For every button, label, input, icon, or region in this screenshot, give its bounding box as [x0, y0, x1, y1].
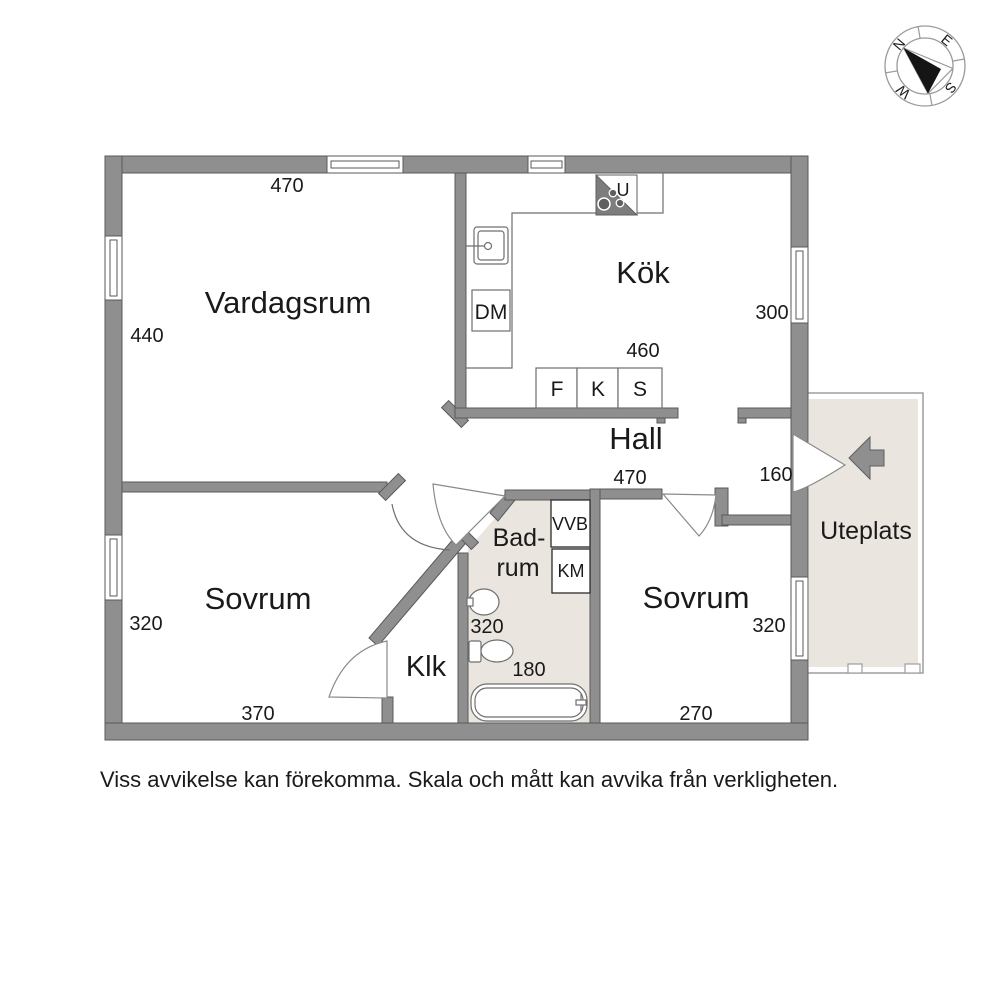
dim-entry-w: 160	[759, 464, 792, 486]
wall-diagonal	[369, 530, 470, 646]
label-dishwasher: DM	[475, 301, 508, 324]
label-fridge: F	[551, 378, 564, 401]
label-sovrum2: Sovrum	[643, 580, 750, 615]
burner-icon	[598, 198, 610, 210]
label-badrum-line1: Bad-	[493, 524, 546, 552]
door-sovrum2	[663, 494, 716, 536]
wall-outer-top	[105, 156, 808, 173]
dim-kok-h: 300	[755, 302, 788, 324]
uteplats-foot-left	[848, 664, 862, 673]
compass-west-label: W	[892, 81, 913, 102]
uteplats-foot-right	[905, 664, 920, 673]
compass-south-label: S	[942, 79, 960, 96]
window-right-kok	[791, 247, 808, 323]
label-stove: U	[617, 180, 630, 200]
dim-hall-w: 470	[613, 467, 646, 489]
dim-badrum-h: 320	[470, 616, 503, 638]
wall-sovrum2-top-offset	[722, 515, 791, 525]
floorplan-canvas: N E S W Vardagsrum Kök Hall Sovrum Sovru…	[0, 0, 992, 992]
label-freezer: K	[591, 378, 605, 401]
dim-sovrum2-w: 270	[679, 703, 712, 725]
label-sovrum1: Sovrum	[205, 581, 312, 616]
dim-sovrum2-h: 320	[752, 615, 785, 637]
label-hall: Hall	[609, 421, 662, 456]
label-uteplats: Uteplats	[820, 517, 912, 545]
wall-klk-stub	[382, 697, 393, 723]
dim-sovrum1-h: 320	[129, 613, 162, 635]
bathtub-tap-icon	[576, 700, 586, 705]
wall-vardagsrum-kok	[455, 173, 466, 408]
dim-vardagsrum-w: 470	[270, 175, 303, 197]
window-left-vardagsrum	[105, 236, 122, 300]
dim-badrum-w: 180	[512, 659, 545, 681]
bathtub	[471, 684, 587, 721]
wall-klk-badrum	[458, 553, 468, 723]
burner-icon	[616, 199, 624, 207]
kitchen-fixtures	[466, 173, 663, 408]
window-left-sovrum1	[105, 535, 122, 600]
label-klk: Klk	[406, 651, 447, 683]
label-pantry: S	[633, 378, 647, 401]
window-top-kok	[528, 156, 565, 173]
wall-badrum-sovrum2	[590, 489, 600, 723]
walls	[105, 156, 808, 740]
window-right-sovrum2	[791, 577, 808, 660]
label-washing-machine: KM	[558, 561, 585, 581]
dim-kok-w: 460	[626, 340, 659, 362]
wall-sovrum2-top	[600, 489, 662, 499]
wall-outer-bottom	[105, 723, 808, 740]
wall-entry-stub	[738, 408, 791, 418]
dim-vardagsrum-h: 440	[130, 325, 163, 347]
wall-jamb-b	[738, 418, 746, 423]
dim-sovrum1-w: 370	[241, 703, 274, 725]
disclaimer-text: Viss avvikelse kan förekomma. Skala och …	[100, 767, 838, 792]
compass-rose: N E S W	[885, 26, 965, 106]
wall-badrum-top	[505, 490, 600, 500]
floorplan-page: N E S W Vardagsrum Kök Hall Sovrum Sovru…	[0, 0, 992, 992]
wall-kok-hall	[455, 408, 678, 418]
kitchen-sink	[466, 227, 508, 264]
label-water-heater: VVB	[552, 514, 588, 534]
wall-vardagsrum-sovrum1	[122, 482, 387, 492]
label-badrum-line2: rum	[496, 554, 539, 582]
window-top-vardagsrum	[327, 156, 403, 173]
label-vardagsrum: Vardagsrum	[205, 285, 372, 320]
label-kok: Kök	[616, 255, 670, 290]
toilet	[469, 640, 513, 662]
door-klk	[329, 641, 387, 698]
compass-east-label: E	[938, 31, 955, 49]
